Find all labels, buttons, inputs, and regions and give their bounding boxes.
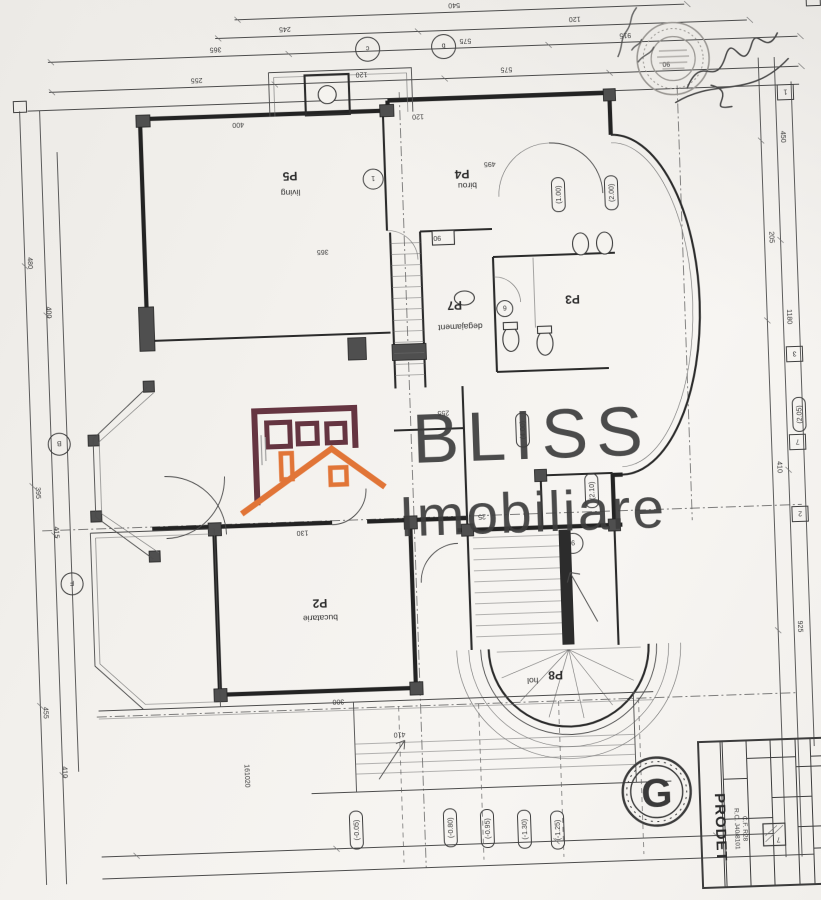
- svg-text:480: 480: [26, 257, 33, 269]
- svg-text:(2.05): (2.05): [796, 405, 804, 424]
- svg-text:925: 925: [796, 621, 803, 633]
- svg-text:120: 120: [412, 112, 424, 119]
- svg-text:(-0.05): (-0.05): [354, 820, 362, 841]
- room-id: P7: [447, 298, 462, 313]
- logo-letter: G: [640, 771, 673, 816]
- svg-text:540: 540: [448, 1, 460, 8]
- svg-text:575: 575: [500, 65, 512, 72]
- svg-text:400: 400: [44, 307, 51, 319]
- floor-plan-drawing: 1 3 7 2 B F c b 1 9 6: [0, 0, 821, 900]
- svg-text:255: 255: [191, 76, 203, 83]
- room-id: P2: [312, 596, 327, 611]
- svg-text:7: 7: [776, 835, 780, 842]
- grid-markers-left: B F: [48, 433, 84, 596]
- svg-text:(-1.25): (-1.25): [555, 820, 563, 841]
- toilet-icon: [502, 327, 519, 352]
- svg-text:410: 410: [393, 730, 405, 737]
- svg-text:120: 120: [569, 15, 581, 22]
- axis-line-horizontal-2: [97, 693, 799, 717]
- svg-text:6: 6: [503, 304, 507, 311]
- room-id: P3: [565, 292, 580, 307]
- sink-icon: [596, 232, 613, 255]
- svg-text:415: 415: [52, 526, 59, 538]
- chimney-flue: [318, 85, 337, 104]
- entrance-steps: [99, 691, 674, 873]
- company-name: PRODET: [711, 793, 730, 862]
- lot-number: 161020: [243, 764, 251, 788]
- svg-text:(1.00): (1.00): [556, 185, 564, 204]
- svg-text:(-0.95): (-0.95): [485, 818, 493, 839]
- logo-window-icon: [298, 423, 318, 444]
- elevation-markers: (-0.05) (-0.80) (-0.95) (-1.30) (-1.25): [349, 804, 564, 856]
- left-bay: [91, 387, 159, 561]
- room-name: bucatarie: [303, 613, 339, 624]
- room-id: P5: [282, 169, 297, 184]
- detail-key-plan: 7: [763, 823, 786, 846]
- title-block: PRODET R.C. J40/8101 C.F. R28 7: [698, 738, 821, 888]
- svg-text:455: 455: [41, 707, 48, 719]
- svg-text:450: 450: [779, 131, 786, 143]
- svg-text:120: 120: [355, 70, 367, 77]
- svg-text:90: 90: [433, 234, 441, 241]
- dimension-chain-top: [24, 0, 821, 111]
- room-id: P4: [454, 167, 469, 182]
- logo-door: [281, 453, 293, 479]
- toilet-icon: [572, 233, 589, 256]
- dimension-chain-left: [13, 100, 82, 885]
- grid-letter: b: [441, 42, 445, 49]
- grid-letter: B: [56, 439, 61, 446]
- svg-text:205: 205: [767, 231, 774, 243]
- grid-letter: c: [365, 44, 369, 51]
- svg-text:575: 575: [459, 37, 471, 44]
- svg-text:130: 130: [296, 529, 308, 536]
- axis-line-vertical-2: [677, 85, 692, 520]
- svg-text:(-1.30): (-1.30): [522, 819, 530, 840]
- company-reg2: C.F. R28: [741, 816, 749, 842]
- watermark-line2: Imobiliare: [398, 476, 667, 549]
- scanned-floor-plan-sheet: 1 3 7 2 B F c b 1 9 6: [0, 0, 821, 900]
- grid-markers-top: c b: [355, 34, 456, 61]
- logo-window-icon: [330, 467, 347, 485]
- plan-content: 1 3 7 2 B F c b 1 9 6: [10, 0, 821, 900]
- logo-window-icon: [267, 422, 291, 447]
- svg-text:365: 365: [209, 45, 221, 52]
- svg-text:365: 365: [317, 248, 329, 255]
- logo-fine-print: [261, 435, 266, 465]
- stair-spine-wall: [559, 529, 575, 644]
- watermark-line1: BLISS: [411, 392, 652, 478]
- dimension-chain-right: [755, 56, 818, 857]
- svg-text:1180: 1180: [785, 309, 793, 324]
- logo-window-icon: [327, 423, 346, 443]
- left-edge-box: [13, 101, 26, 112]
- svg-text:410: 410: [60, 766, 67, 778]
- dimension-chain-bottom: [102, 829, 814, 879]
- grid-number: 2: [798, 509, 802, 516]
- svg-text:(2.00): (2.00): [608, 184, 616, 203]
- grid-number: 7: [795, 437, 799, 444]
- grid-letter: F: [70, 579, 75, 586]
- room-id: P8: [548, 668, 563, 683]
- company-reg1: R.C. J40/8101: [732, 808, 740, 850]
- bath-fixtures: [432, 225, 616, 359]
- svg-text:410: 410: [775, 461, 782, 473]
- svg-text:(-0.80): (-0.80): [448, 817, 456, 838]
- room-name: hol: [527, 676, 539, 686]
- company-logo: G: [622, 756, 692, 826]
- svg-text:1: 1: [371, 174, 375, 181]
- svg-text:395: 395: [34, 487, 41, 499]
- watermark-house-logo: [238, 407, 385, 514]
- staircase: [453, 526, 685, 763]
- room-name: living: [280, 188, 300, 199]
- grid-number: 1: [783, 88, 787, 95]
- axis-line-vertical: [399, 92, 426, 868]
- top-edge-box: [806, 0, 820, 6]
- svg-text:400: 400: [232, 121, 244, 128]
- grid-number: 3: [792, 349, 796, 356]
- svg-text:245: 245: [279, 25, 291, 32]
- bidet-icon: [537, 331, 554, 356]
- room-name: birou: [458, 181, 478, 192]
- approval-stamp: [636, 21, 710, 95]
- svg-text:300: 300: [332, 697, 344, 704]
- room-name: degajament: [437, 321, 482, 333]
- svg-text:495: 495: [484, 160, 496, 167]
